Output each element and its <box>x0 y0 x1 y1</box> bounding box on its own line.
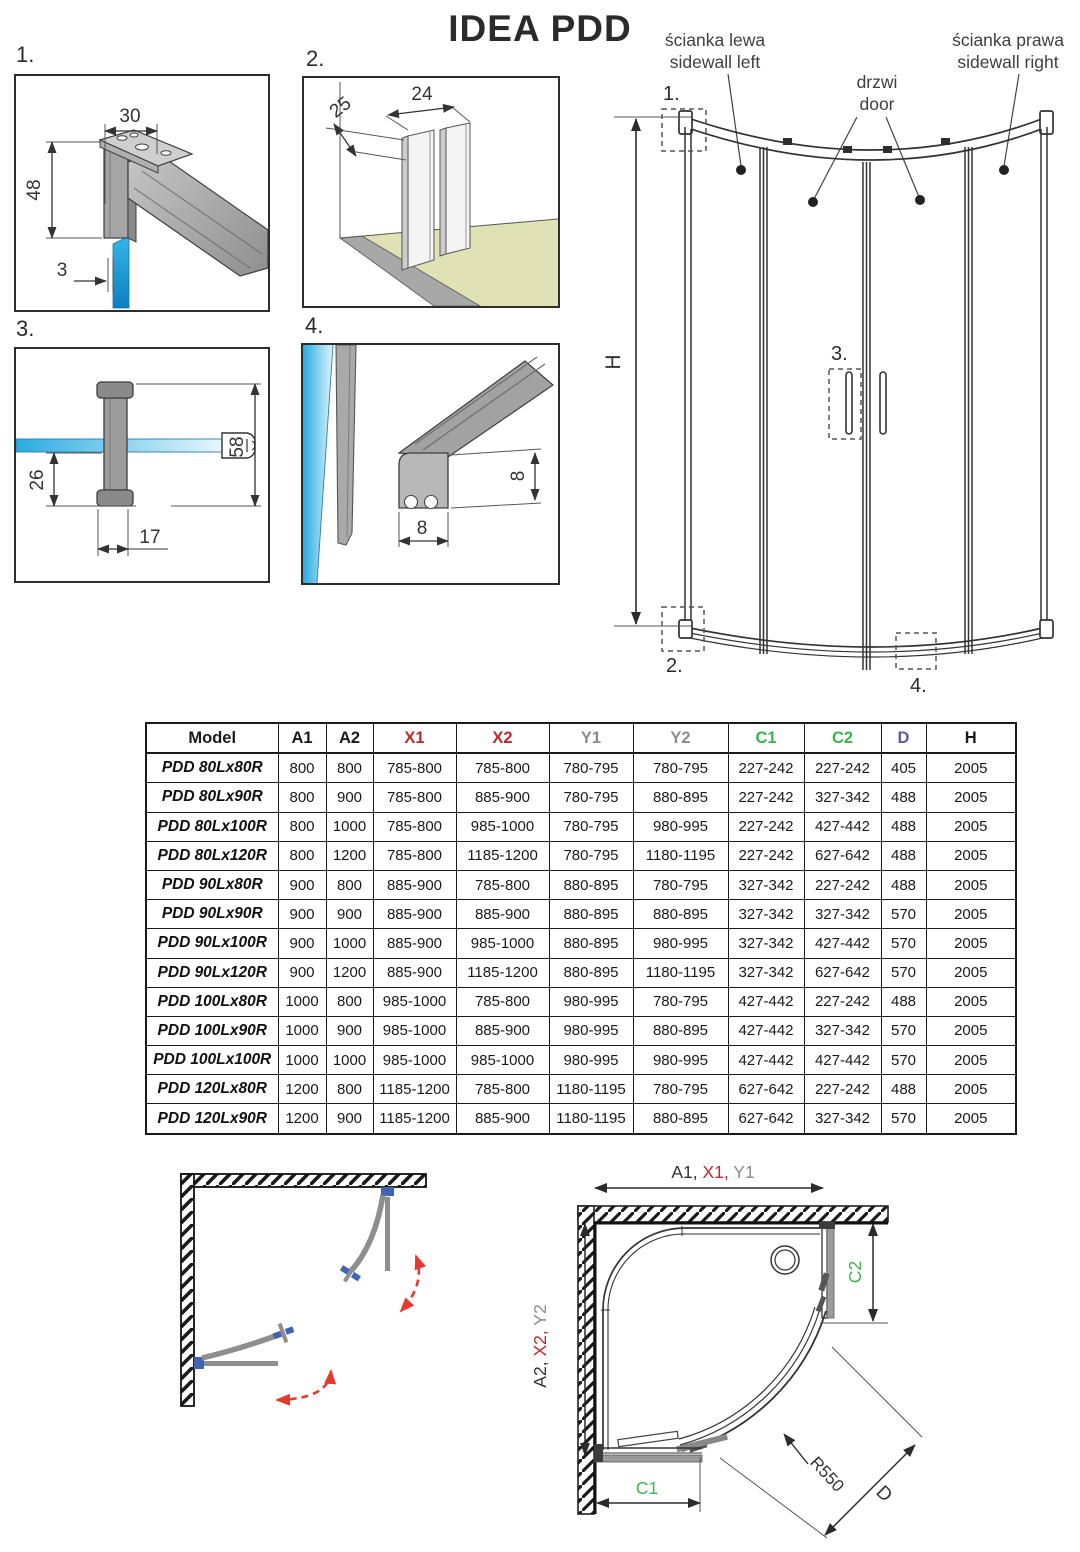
value-cell: 627-642 <box>804 841 881 870</box>
value-cell: 2005 <box>926 870 1016 899</box>
value-cell: 885-900 <box>456 900 549 929</box>
table-row: PDD 120Lx80R12008001185-1200785-8001180-… <box>146 1075 1016 1104</box>
value-cell: 327-342 <box>804 1016 881 1045</box>
value-cell: 780-795 <box>633 987 728 1016</box>
value-cell: 488 <box>881 870 926 899</box>
value-cell: 885-900 <box>456 1016 549 1045</box>
sidewall-left-label-en: sidewall left <box>670 52 761 72</box>
column-header-c2: C2 <box>804 723 881 753</box>
value-cell: 900 <box>326 1016 373 1045</box>
sidewall-right-label-pl: ścianka prawa <box>952 30 1064 50</box>
value-cell: 488 <box>881 841 926 870</box>
svg-text:3: 3 <box>57 260 68 281</box>
door-bottom-left <box>194 1320 297 1369</box>
top-rail-beam <box>128 152 268 276</box>
value-cell: 800 <box>278 753 326 783</box>
svg-text:58: 58 <box>227 436 248 457</box>
value-cell: 800 <box>278 841 326 870</box>
dimension-25: 25 <box>326 93 406 160</box>
value-cell: 980-995 <box>633 929 728 958</box>
elevation-figure: ścianka lewa sidewall left drzwi door śc… <box>600 20 1080 720</box>
svg-text:8: 8 <box>508 471 529 482</box>
column-header-y1: Y1 <box>549 723 633 753</box>
value-cell: 880-895 <box>549 958 633 987</box>
column-header-d: D <box>881 723 926 753</box>
height-label: H <box>602 354 625 369</box>
value-cell: 800 <box>278 812 326 841</box>
value-cell: 785-800 <box>373 841 456 870</box>
dimension-H: H <box>602 117 691 626</box>
marker-1: 1. <box>663 83 680 105</box>
dim-a1: A1, <box>671 1162 702 1182</box>
svg-text:26: 26 <box>27 469 48 490</box>
value-cell: 900 <box>326 900 373 929</box>
value-cell: 985-1000 <box>373 1046 456 1075</box>
value-cell: 1185-1200 <box>456 841 549 870</box>
swing-arrow-top <box>401 1256 419 1311</box>
glass-panel <box>113 236 129 308</box>
value-cell: 327-342 <box>804 783 881 812</box>
model-cell: PDD 90Lx90R <box>146 900 278 929</box>
value-cell: 427-442 <box>804 929 881 958</box>
value-cell: 900 <box>278 870 326 899</box>
value-cell: 880-895 <box>633 783 728 812</box>
value-cell: 2005 <box>926 753 1016 783</box>
value-cell: 885-900 <box>373 870 456 899</box>
dimension-8-vertical: 8 <box>451 449 541 508</box>
value-cell: 227-242 <box>728 753 804 783</box>
value-cell: 227-242 <box>804 870 881 899</box>
dimension-8-horizontal: 8 <box>399 512 448 547</box>
value-cell: 980-995 <box>549 987 633 1016</box>
value-cell: 2005 <box>926 987 1016 1016</box>
value-cell: 488 <box>881 1075 926 1104</box>
spec-sheet-page: IDEA PDD 1. 2. 3. 4. <box>0 0 1080 1552</box>
value-cell: 227-242 <box>804 1075 881 1104</box>
value-cell: 780-795 <box>549 812 633 841</box>
value-cell: 427-442 <box>728 1046 804 1075</box>
value-cell: 1200 <box>326 841 373 870</box>
dimension-3: 3 <box>57 258 113 292</box>
detail-3-label: 3. <box>16 316 34 342</box>
value-cell: 880-895 <box>633 900 728 929</box>
value-cell: 2005 <box>926 783 1016 812</box>
door-hardware <box>618 1273 830 1453</box>
value-cell: 327-342 <box>728 900 804 929</box>
column-header-x2: X2 <box>456 723 549 753</box>
value-cell: 985-1000 <box>373 987 456 1016</box>
value-cell: 227-242 <box>728 783 804 812</box>
elevation-drawing: ścianka lewa sidewall left drzwi door śc… <box>600 20 1080 715</box>
door-label-en: door <box>859 94 894 114</box>
table-row: PDD 80Lx120R8001200785-8001185-1200780-7… <box>146 841 1016 870</box>
value-cell: 2005 <box>926 900 1016 929</box>
value-cell: 1000 <box>278 987 326 1016</box>
detail-4-label: 4. <box>305 313 323 339</box>
value-cell: 885-900 <box>456 1104 549 1134</box>
value-cell: 980-995 <box>633 812 728 841</box>
value-cell: 1185-1200 <box>373 1104 456 1134</box>
value-cell: 900 <box>326 783 373 812</box>
door-swing-diagram <box>180 1172 430 1412</box>
value-cell: 980-995 <box>549 1016 633 1045</box>
detail-2-drawing: 24 25 <box>304 78 558 306</box>
value-cell: 885-900 <box>456 783 549 812</box>
value-cell: 1185-1200 <box>456 958 549 987</box>
dimension-24: 24 <box>386 84 470 130</box>
door-handle-right <box>880 372 886 434</box>
table-row: PDD 100Lx80R1000800985-1000785-800980-99… <box>146 987 1016 1016</box>
radius-label: R550 <box>806 1453 848 1496</box>
value-cell: 1000 <box>326 812 373 841</box>
model-cell: PDD 80Lx120R <box>146 841 278 870</box>
value-cell: 980-995 <box>633 1046 728 1075</box>
value-cell: 880-895 <box>549 870 633 899</box>
value-cell: 227-242 <box>804 753 881 783</box>
glass-edges <box>685 127 1047 670</box>
drain <box>771 1246 799 1274</box>
detail-1-drawing: 30 48 3 <box>16 76 268 310</box>
svg-text:48: 48 <box>24 179 45 200</box>
value-cell: 627-642 <box>728 1104 804 1134</box>
model-cell: PDD 80Lx90R <box>146 783 278 812</box>
value-cell: 900 <box>278 929 326 958</box>
value-cell: 780-795 <box>633 1075 728 1104</box>
value-cell: 785-800 <box>373 753 456 783</box>
svg-text:A1, X1, Y1: A1, X1, Y1 <box>671 1162 754 1182</box>
spec-table: ModelA1A2X1X2Y1Y2C1C2DHPDD 80Lx80R800800… <box>145 722 1017 1135</box>
model-cell: PDD 100Lx80R <box>146 987 278 1016</box>
detail-4-drawing: 8 8 <box>303 345 558 583</box>
value-cell: 2005 <box>926 958 1016 987</box>
table-header-row: ModelA1A2X1X2Y1Y2C1C2DH <box>146 723 1016 753</box>
value-cell: 900 <box>326 1104 373 1134</box>
model-cell: PDD 120Lx90R <box>146 1104 278 1134</box>
value-cell: 800 <box>326 1075 373 1104</box>
value-cell: 488 <box>881 987 926 1016</box>
dimension-A2: A2, X2, Y2 <box>530 1224 585 1455</box>
plan-view-figure: A1, X1, Y1 A2, X2, Y2 C2 C1 R550 D <box>530 1160 1080 1552</box>
swing-arrow-bottom <box>277 1371 331 1400</box>
door-top-right <box>336 1187 394 1287</box>
value-cell: 2005 <box>926 841 1016 870</box>
column-header-y2: Y2 <box>633 723 728 753</box>
value-cell: 227-242 <box>728 812 804 841</box>
value-cell: 570 <box>881 1046 926 1075</box>
model-cell: PDD 80Lx80R <box>146 753 278 783</box>
model-cell: PDD 90Lx80R <box>146 870 278 899</box>
value-cell: 488 <box>881 783 926 812</box>
sliding-door-arcs <box>679 1307 826 1451</box>
model-cell: PDD 100Lx100R <box>146 1046 278 1075</box>
dim-x2: X2, <box>530 1326 550 1357</box>
value-cell: 2005 <box>926 1104 1016 1134</box>
dimension-48: 48 <box>24 142 102 238</box>
value-cell: 570 <box>881 958 926 987</box>
value-cell: 985-1000 <box>456 929 549 958</box>
value-cell: 427-442 <box>728 1016 804 1045</box>
value-cell: 1000 <box>326 929 373 958</box>
value-cell: 800 <box>326 870 373 899</box>
table-row: PDD 120Lx90R12009001185-1200885-9001180-… <box>146 1104 1016 1134</box>
column-header-x1: X1 <box>373 723 456 753</box>
door-handle-left <box>846 372 852 434</box>
dimension-C1: C1 <box>597 1457 700 1512</box>
value-cell: 2005 <box>926 1016 1016 1045</box>
seal-bar <box>399 357 553 509</box>
roller <box>883 146 892 153</box>
value-cell: 780-795 <box>549 841 633 870</box>
spec-table-section: ModelA1A2X1X2Y1Y2C1C2DHPDD 80Lx80R800800… <box>145 722 1015 1135</box>
value-cell: 880-895 <box>549 929 633 958</box>
value-cell: 780-795 <box>549 783 633 812</box>
table-row: PDD 80Lx100R8001000785-800985-1000780-79… <box>146 812 1016 841</box>
column-header-a2: A2 <box>326 723 373 753</box>
plan-view-drawing: A1, X1, Y1 A2, X2, Y2 C2 C1 R550 D <box>530 1160 1080 1552</box>
table-row: PDD 90Lx90R900900885-900885-900880-89588… <box>146 900 1016 929</box>
value-cell: 570 <box>881 900 926 929</box>
detail-2-label: 2. <box>306 46 324 72</box>
value-cell: 785-800 <box>373 783 456 812</box>
svg-text:24: 24 <box>411 84 433 105</box>
value-cell: 885-900 <box>373 900 456 929</box>
roller <box>843 146 852 153</box>
dimension-A1: A1, X1, Y1 <box>595 1162 823 1188</box>
detail-figure-1: 30 48 3 <box>14 74 270 312</box>
value-cell: 800 <box>278 783 326 812</box>
value-cell: 800 <box>326 987 373 1016</box>
sidewall-right-label-en: sidewall right <box>957 52 1058 72</box>
model-cell: PDD 90Lx120R <box>146 958 278 987</box>
value-cell: 900 <box>278 900 326 929</box>
value-cell: 1180-1195 <box>633 958 728 987</box>
dim-c2: C2 <box>845 1261 865 1283</box>
table-row: PDD 80Lx80R800800785-800785-800780-79578… <box>146 753 1016 783</box>
value-cell: 880-895 <box>633 1104 728 1134</box>
value-cell: 785-800 <box>456 753 549 783</box>
value-cell: 1185-1200 <box>373 1075 456 1104</box>
marker-4: 4. <box>910 675 927 697</box>
door-label-pl: drzwi <box>857 72 898 92</box>
leader-dot <box>736 165 746 175</box>
value-cell: 985-1000 <box>456 812 549 841</box>
value-cell: 427-442 <box>804 1046 881 1075</box>
value-cell: 327-342 <box>728 958 804 987</box>
value-cell: 780-795 <box>633 870 728 899</box>
svg-text:30: 30 <box>119 106 140 127</box>
leader-dot <box>915 195 925 205</box>
value-cell: 780-795 <box>549 753 633 783</box>
roller <box>941 138 950 145</box>
value-cell: 980-995 <box>549 1046 633 1075</box>
part-labels: ścianka lewa sidewall left drzwi door śc… <box>665 30 1064 207</box>
table-row: PDD 90Lx80R900800885-900785-800880-89578… <box>146 870 1016 899</box>
dim-y1: Y1 <box>733 1162 754 1182</box>
column-header-model: Model <box>146 723 278 753</box>
detail-3-drawing: 26 17 58 <box>16 349 268 581</box>
value-cell: 2005 <box>926 1046 1016 1075</box>
value-cell: 570 <box>881 1016 926 1045</box>
dim-c1: C1 <box>636 1478 658 1498</box>
detail-1-label: 1. <box>16 42 34 68</box>
leader-dot <box>808 197 818 207</box>
door-swing-figure <box>180 1172 430 1417</box>
svg-text:17: 17 <box>139 527 160 548</box>
marker-2: 2. <box>666 655 683 677</box>
value-cell: 327-342 <box>804 1104 881 1134</box>
value-cell: 2005 <box>926 812 1016 841</box>
column-header-h: H <box>926 723 1016 753</box>
value-cell: 785-800 <box>456 987 549 1016</box>
value-cell: 488 <box>881 812 926 841</box>
svg-text:25: 25 <box>326 93 356 123</box>
leader-dot <box>999 165 1009 175</box>
table-row: PDD 100Lx100R10001000985-1000985-1000980… <box>146 1046 1016 1075</box>
value-cell: 800 <box>326 753 373 783</box>
table-row: PDD 100Lx90R1000900985-1000885-900980-99… <box>146 1016 1016 1045</box>
detail-figure-3: 26 17 58 <box>14 347 270 583</box>
wall-profile <box>336 345 356 545</box>
value-cell: 985-1000 <box>456 1046 549 1075</box>
value-cell: 570 <box>881 929 926 958</box>
value-cell: 427-442 <box>804 812 881 841</box>
value-cell: 900 <box>278 958 326 987</box>
table-row: PDD 90Lx120R9001200885-9001185-1200880-8… <box>146 958 1016 987</box>
value-cell: 1180-1195 <box>549 1075 633 1104</box>
value-cell: 1000 <box>278 1046 326 1075</box>
table-row: PDD 90Lx100R9001000885-900985-1000880-89… <box>146 929 1016 958</box>
value-cell: 227-242 <box>728 841 804 870</box>
value-cell: 1180-1195 <box>549 1104 633 1134</box>
column-header-c1: C1 <box>728 723 804 753</box>
top-rail <box>679 111 1053 160</box>
table-row: PDD 80Lx90R800900785-800885-900780-79588… <box>146 783 1016 812</box>
value-cell: 780-795 <box>633 753 728 783</box>
svg-text:8: 8 <box>417 518 428 539</box>
value-cell: 880-895 <box>549 900 633 929</box>
roller <box>783 138 792 145</box>
value-cell: 1000 <box>278 1016 326 1045</box>
dimension-R550: R550 <box>784 1434 848 1496</box>
value-cell: 985-1000 <box>373 1016 456 1045</box>
value-cell: 327-342 <box>728 870 804 899</box>
model-cell: PDD 100Lx90R <box>146 1016 278 1045</box>
value-cell: 880-895 <box>633 1016 728 1045</box>
value-cell: 785-800 <box>373 812 456 841</box>
dimension-D: D <box>720 1347 922 1538</box>
detail-figure-4: 8 8 <box>301 343 560 585</box>
value-cell: 427-442 <box>728 987 804 1016</box>
model-cell: PDD 120Lx80R <box>146 1075 278 1104</box>
dim-x1: X1, <box>702 1162 733 1182</box>
value-cell: 1200 <box>326 958 373 987</box>
value-cell: 327-342 <box>728 929 804 958</box>
value-cell: 785-800 <box>456 870 549 899</box>
value-cell: 1200 <box>278 1075 326 1104</box>
value-cell: 227-242 <box>804 987 881 1016</box>
detail-markers: 1. 2. 3. 4. <box>662 83 936 697</box>
value-cell: 627-642 <box>728 1075 804 1104</box>
value-cell: 885-900 <box>373 929 456 958</box>
value-cell: 627-642 <box>804 958 881 987</box>
value-cell: 2005 <box>926 929 1016 958</box>
glass-panel <box>303 345 333 583</box>
value-cell: 405 <box>881 753 926 783</box>
model-cell: PDD 90Lx100R <box>146 929 278 958</box>
column-header-a1: A1 <box>278 723 326 753</box>
value-cell: 1000 <box>326 1046 373 1075</box>
dim-y2: Y2 <box>530 1304 550 1325</box>
marker-3: 3. <box>831 343 848 365</box>
sidewall-left-label-pl: ścianka lewa <box>665 30 765 50</box>
value-cell: 327-342 <box>804 900 881 929</box>
detail-figure-2: 24 25 <box>302 76 560 308</box>
dim-a2: A2, <box>530 1357 550 1388</box>
value-cell: 885-900 <box>373 958 456 987</box>
value-cell: 570 <box>881 1104 926 1134</box>
value-cell: 2005 <box>926 1075 1016 1104</box>
dimension-17: 17 <box>98 509 168 556</box>
value-cell: 785-800 <box>456 1075 549 1104</box>
svg-text:A2, X2, Y2: A2, X2, Y2 <box>530 1304 550 1387</box>
model-cell: PDD 80Lx100R <box>146 812 278 841</box>
value-cell: 1200 <box>278 1104 326 1134</box>
value-cell: 1180-1195 <box>633 841 728 870</box>
